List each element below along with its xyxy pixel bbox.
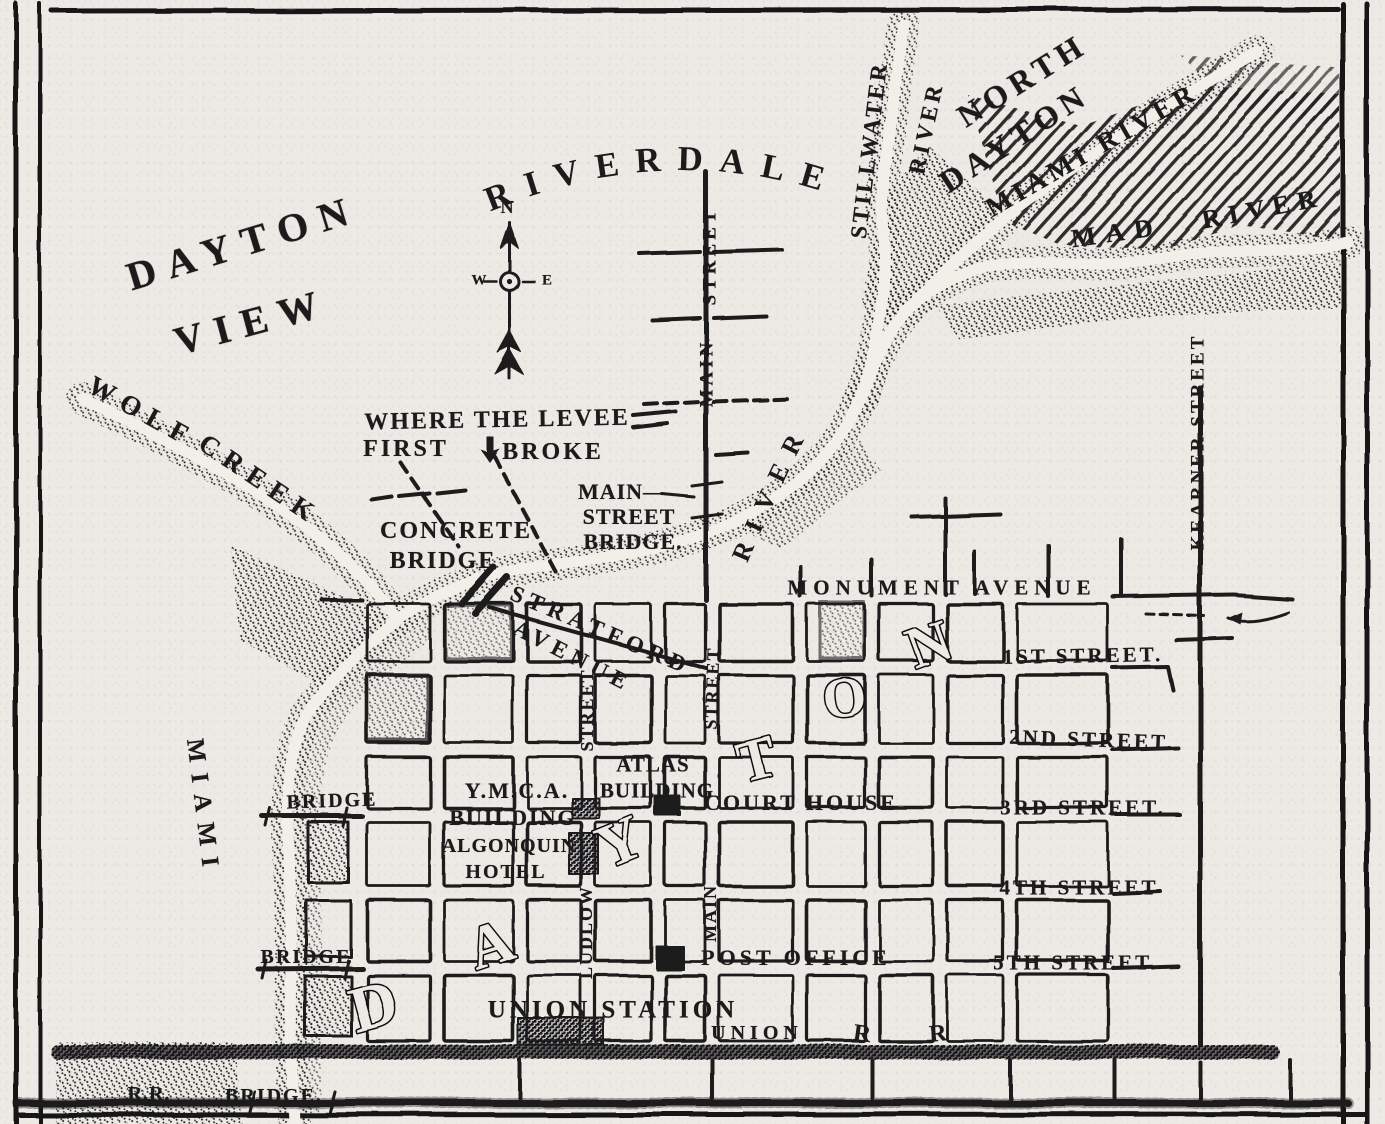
city-block (879, 822, 933, 886)
city-block (665, 822, 705, 886)
street-label-monument: MONUMENT AVENUE (787, 578, 1096, 599)
city-block (947, 675, 1003, 743)
map-drawing: DAYTON RIVERDALERIVER (0, 0, 1385, 1124)
street-label-main-riverdale-1: MAIN (698, 339, 717, 408)
city-block (719, 822, 793, 886)
main-street-bridge-mark (692, 482, 722, 486)
place-label-algonquin-2: HOTEL (465, 862, 546, 882)
place-label-atlas-1: ATLAS (616, 755, 689, 776)
annotation-levee-3: BROKE (502, 440, 604, 464)
city-block (665, 675, 705, 743)
place-label-rr-bridge-1: R.R. (128, 1084, 171, 1104)
place-label-union-rr: UNION (711, 1023, 803, 1043)
place-label-bridge-5th: BRIDGE (261, 947, 352, 967)
annotation-main-st-bridge-2: STREET (583, 506, 676, 528)
city-block (367, 822, 430, 886)
annotation-concrete-bridge-2: BRIDGE (390, 549, 497, 573)
city-block (367, 900, 430, 961)
city-block (719, 604, 793, 661)
annotation-main-st-bridge-1: MAIN— (578, 481, 666, 503)
place-label-post-office: POST OFFICE (701, 947, 891, 969)
street-label-main-riverdale-2: STREET (701, 207, 720, 306)
big-letter-O: O (820, 665, 870, 731)
street-label-kearner: KEARNER STREET (1189, 334, 1208, 551)
street-label-main-downtown-1: MAIN (701, 884, 719, 942)
place-label-rr-r1: R (852, 1021, 873, 1047)
place-label-ymca-1: Y.M.C.A. (465, 780, 569, 802)
street-label-3rd: 3RD STREET. (1000, 798, 1166, 819)
city-block (947, 975, 1003, 1041)
city-block (947, 822, 1003, 886)
big-letter-N: N (898, 606, 960, 681)
street-label-ludlow-1: LUDLOW (577, 885, 595, 979)
compass-label-e: E (542, 274, 552, 289)
compass-label-w: W (472, 274, 487, 289)
place-label-bridge-3rd: BRIDGE (286, 789, 378, 812)
place-label-atlas-2: BUILDING (600, 781, 714, 802)
annotation-levee-2: FIRST (363, 437, 449, 461)
place-label-ymca-2: BUILDING (449, 807, 576, 829)
annotation-concrete-bridge-1: CONCRETE (380, 519, 532, 543)
city-block (947, 604, 1003, 661)
place-label-union-station: UNION STATION (488, 998, 738, 1023)
dayton-flood-map: DAYTON RIVERDALERIVER DAYTONVIEWNORTHDAY… (0, 0, 1385, 1124)
annotation-levee-1: WHERE THE LEVEE (364, 406, 630, 435)
city-block (527, 675, 581, 743)
city-block (595, 900, 651, 961)
street-label-ludlow-2: STREET (578, 668, 596, 751)
city-block (807, 822, 865, 886)
place-label-court-house: COURT HOUSE (704, 792, 898, 814)
annotation-main-st-bridge-3: BRIDGE. (583, 531, 682, 553)
place-label-rr-bridge-2: BRIDGE. (225, 1086, 323, 1106)
big-letter-T: T (730, 723, 783, 795)
compass-label-n: N (501, 198, 514, 216)
place-label-algonquin-1: ALGONQUIN (442, 836, 577, 856)
street-label-5th: 5TH STREET. (993, 953, 1159, 974)
compass-rose-icon (484, 222, 534, 378)
street-label-4th: 4TH STREET (1000, 878, 1159, 899)
city-block (947, 757, 1003, 808)
city-block (527, 900, 581, 961)
region-label-riverdale: RIVERDALE (479, 139, 845, 219)
place-label-rr-r2: R (928, 1021, 948, 1047)
city-block (1017, 975, 1108, 1041)
street-label-main-downtown-2: STREET (702, 646, 723, 730)
street-label-1st: 1ST STREET. (1003, 644, 1164, 668)
street-label-2nd: 2ND STREET. (1009, 727, 1175, 754)
city-block (879, 675, 933, 743)
city-block (444, 675, 513, 743)
post-office-marker (656, 946, 683, 969)
city-block (879, 975, 933, 1041)
